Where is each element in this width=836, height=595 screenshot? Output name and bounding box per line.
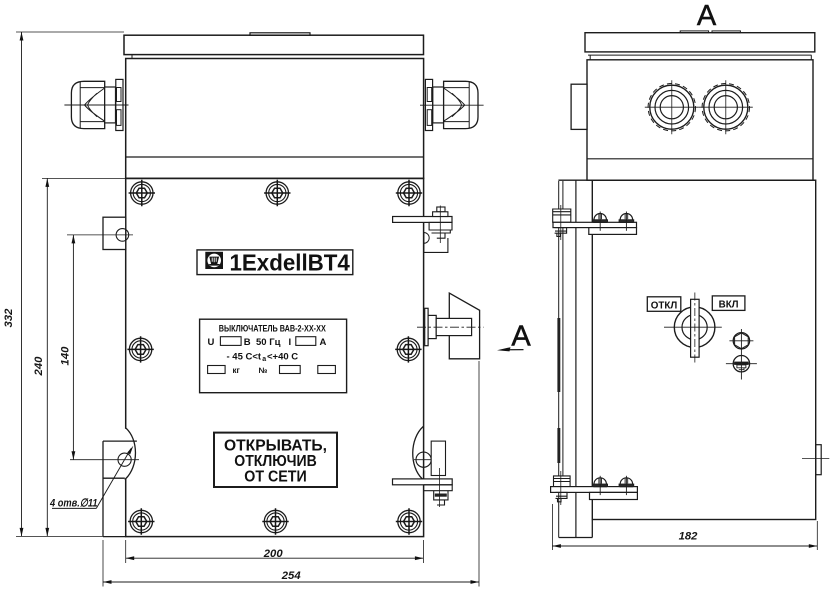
svg-text:ОТКЛ: ОТКЛ <box>651 300 678 311</box>
svg-text:U: U <box>208 337 215 348</box>
svg-text:А: А <box>511 320 531 352</box>
svg-text:№: № <box>259 366 268 375</box>
svg-text:ОТКРЫВАТЬ,: ОТКРЫВАТЬ, <box>224 438 327 455</box>
svg-text:а: а <box>262 356 266 363</box>
svg-text:ВКЛ: ВКЛ <box>719 299 739 310</box>
svg-text:332: 332 <box>3 308 15 328</box>
svg-text:В: В <box>244 337 251 348</box>
svg-text:240: 240 <box>33 356 45 377</box>
svg-text:кг: кг <box>233 366 241 375</box>
svg-text:140: 140 <box>60 346 72 366</box>
svg-text:ОТКЛЮЧИВ: ОТКЛЮЧИВ <box>234 453 317 470</box>
svg-text:ВЫКЛЮЧАТЕЛЬ ВАВ-2-ХХ-ХХ: ВЫКЛЮЧАТЕЛЬ ВАВ-2-ХХ-ХХ <box>219 324 326 334</box>
svg-text:I: I <box>289 337 292 348</box>
svg-text:- 45 С<t: - 45 С<t <box>227 351 262 362</box>
svg-text:А: А <box>320 337 327 348</box>
svg-text:1ExdellBT4: 1ExdellBT4 <box>230 249 350 275</box>
svg-text:200: 200 <box>263 548 284 560</box>
svg-text:А: А <box>697 0 717 32</box>
svg-text:254: 254 <box>281 570 302 582</box>
svg-text:4 отв.∅11: 4 отв.∅11 <box>49 498 97 510</box>
svg-text:50 Гц: 50 Гц <box>256 337 281 348</box>
svg-text:182: 182 <box>679 531 699 543</box>
svg-text:<+40 С: <+40 С <box>267 351 298 362</box>
svg-text:ОТ СЕТИ: ОТ СЕТИ <box>244 469 307 486</box>
